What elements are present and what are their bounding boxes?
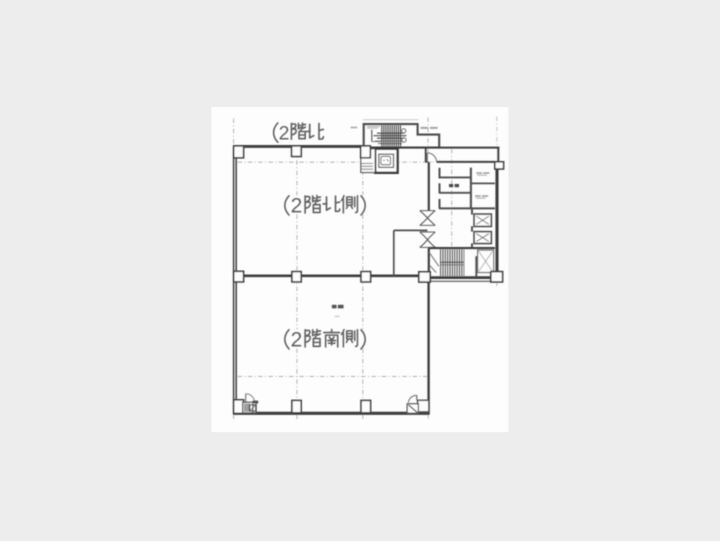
- svg-text:2: 2: [291, 195, 303, 218]
- svg-text:2: 2: [279, 122, 290, 144]
- svg-text:2: 2: [291, 329, 303, 352]
